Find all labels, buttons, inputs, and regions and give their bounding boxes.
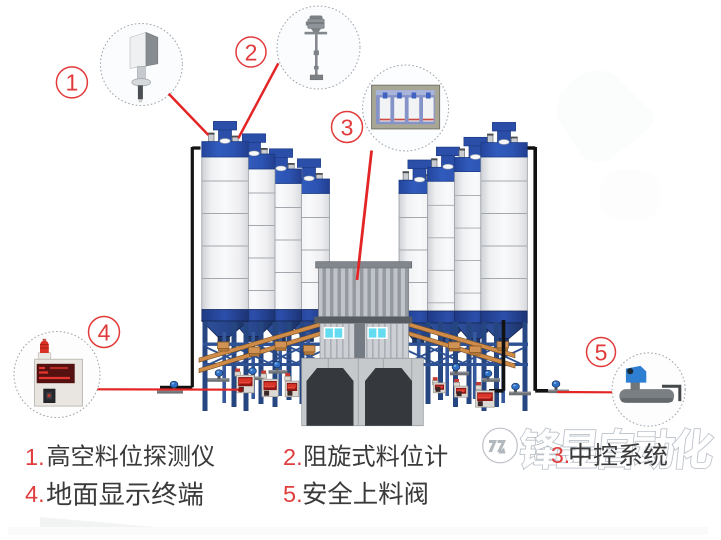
- svg-text:1.: 1.: [25, 444, 45, 470]
- svg-text:1: 1: [66, 70, 79, 96]
- svg-text:3: 3: [341, 114, 354, 140]
- svg-text:4: 4: [98, 319, 111, 345]
- svg-text:4.: 4.: [25, 481, 45, 507]
- svg-text:2: 2: [245, 39, 258, 65]
- svg-text:5: 5: [595, 339, 608, 365]
- svg-text:2.: 2.: [283, 444, 303, 470]
- svg-text:5.: 5.: [283, 481, 303, 507]
- svg-text:3.: 3.: [551, 442, 570, 468]
